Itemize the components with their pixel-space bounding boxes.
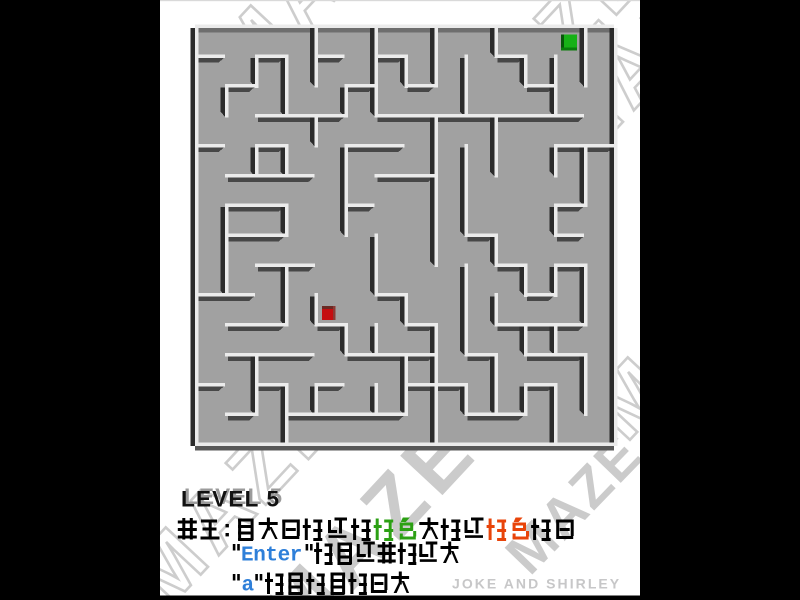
svg-text:a: a — [242, 575, 255, 598]
svg-text:JOKE AND SHIRLEY: JOKE AND SHIRLEY — [452, 576, 621, 592]
svg-text:Enter: Enter — [241, 545, 302, 568]
svg-text:LEVEL 5: LEVEL 5 — [181, 487, 280, 512]
